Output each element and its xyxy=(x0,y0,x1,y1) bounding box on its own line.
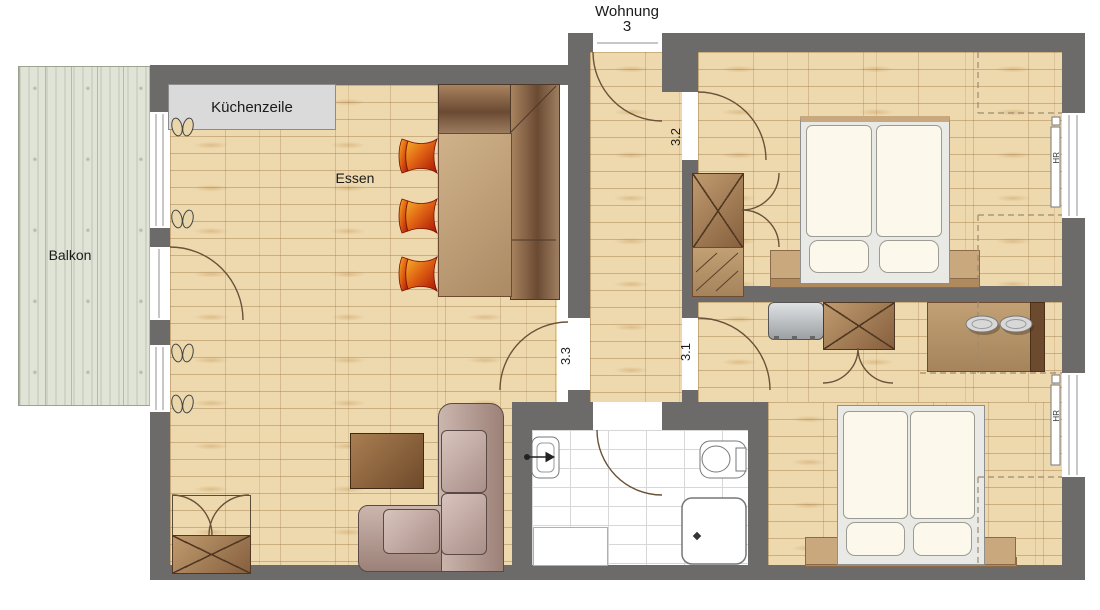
sofa-cushion xyxy=(441,430,487,493)
kitchen-unit: Küchenzeile xyxy=(168,84,336,130)
window-right-lower xyxy=(1062,373,1085,477)
door-number-bottom-bedroom: 3.1 xyxy=(668,335,702,369)
window-balcony-upper xyxy=(150,112,170,228)
sideboard-desk xyxy=(927,302,1045,372)
duvet xyxy=(876,125,942,237)
sofa-cushion xyxy=(383,509,440,554)
wall-bathroom-top-left xyxy=(512,402,593,430)
pillow xyxy=(846,522,905,556)
balcony-door-opening xyxy=(150,247,170,320)
door-number-living: 3.3 xyxy=(548,339,582,373)
tv-unit xyxy=(768,302,824,340)
apartment-title: Wohnung 3 xyxy=(557,4,697,34)
balcony-label: Balkon xyxy=(28,247,112,263)
pillow xyxy=(913,522,972,556)
nightstand xyxy=(983,537,1016,565)
floor-plan: Küchenzeile xyxy=(0,0,1100,610)
duvet xyxy=(843,411,908,519)
nightstand xyxy=(949,250,980,279)
kitchen-label: Küchenzeile xyxy=(211,99,293,116)
wall-bathroom-right xyxy=(748,402,768,565)
wardrobe-living-door-swing xyxy=(172,495,251,536)
dining-table xyxy=(438,133,512,297)
duvet xyxy=(806,125,872,237)
window-right-upper xyxy=(1062,113,1085,218)
sideboard-return xyxy=(1030,302,1045,372)
apartment-title-line2: 3 xyxy=(557,19,697,34)
pillow xyxy=(879,240,939,273)
apartment-title-line1: Wohnung xyxy=(557,4,697,19)
wall-top-left xyxy=(150,65,590,85)
wardrobe-top-bedroom xyxy=(692,173,744,249)
nightstand xyxy=(770,250,801,279)
pillow xyxy=(809,240,869,273)
coffee-table xyxy=(350,433,424,489)
door-opening-bathroom xyxy=(593,402,662,430)
nightstand xyxy=(805,537,838,565)
duvet xyxy=(910,411,975,519)
wardrobe-living xyxy=(172,535,251,574)
sofa-cushion xyxy=(441,493,487,555)
window-balcony-lower xyxy=(150,345,170,412)
wardrobe-bottom-bedroom xyxy=(823,302,895,350)
door-number-top-bedroom: 3.2 xyxy=(658,120,692,154)
shelf-top-bedroom xyxy=(692,247,744,297)
entrance-door-opening xyxy=(593,33,662,52)
balcony-deck xyxy=(18,66,152,406)
dining-bench-right xyxy=(510,84,560,300)
wall-bottom-outer xyxy=(150,565,1085,580)
washing-machine-space xyxy=(533,527,608,566)
dining-label: Essen xyxy=(300,170,410,186)
